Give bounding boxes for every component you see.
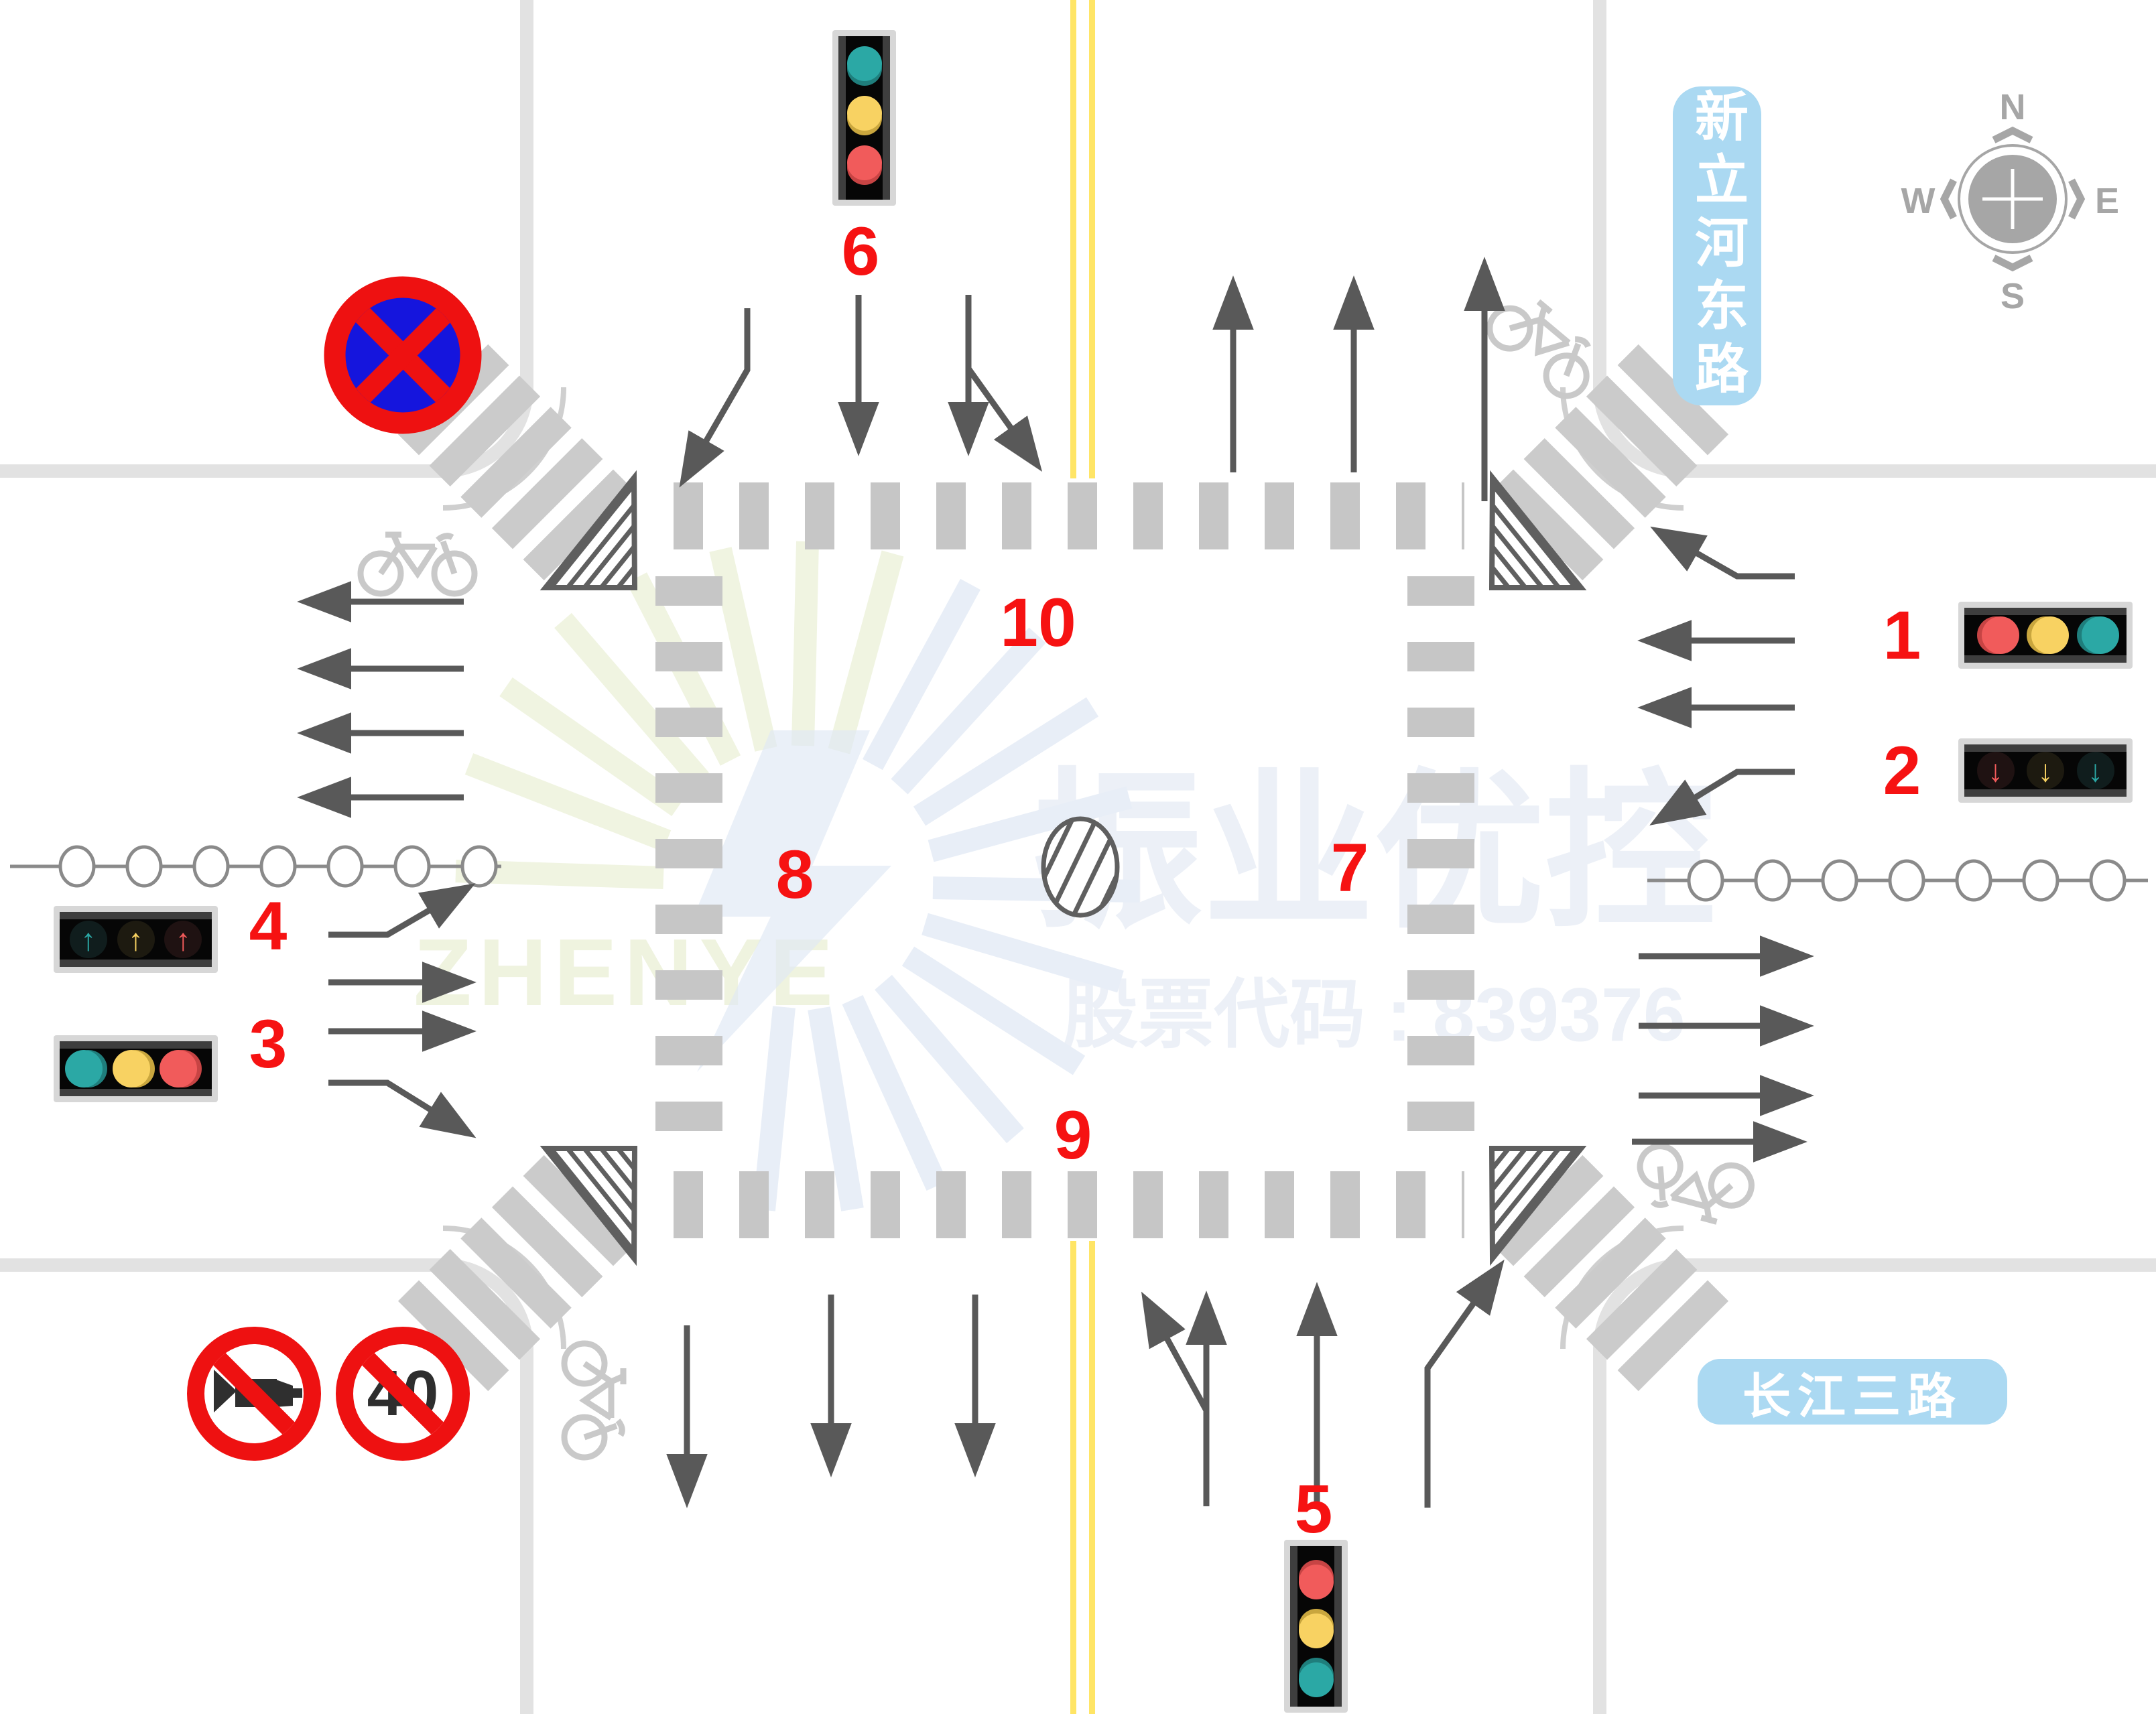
road-name-plate-north: 新立河东路 — [1673, 86, 1761, 405]
yellow-lamp — [117, 1050, 155, 1087]
bicycle-icon-se — [1631, 1142, 1756, 1228]
road-name-plate-south: 长江三路 — [1698, 1359, 2007, 1425]
compass-west-label: W — [1901, 181, 1936, 221]
teal-down-arrow-lamp: ↓ — [2077, 752, 2114, 789]
west-approach-left-turn-arrow — [328, 907, 436, 935]
traffic-light-6 — [832, 30, 896, 206]
crosswalk-east — [1407, 576, 1474, 1167]
yellow-up-arrow-lamp: ↑ — [117, 921, 155, 958]
red-lamp — [847, 150, 882, 185]
east-approach-left-turn-arrow — [1689, 772, 1795, 801]
diagram-canvas: N S W E — [0, 0, 2156, 1714]
bicycle-icon-sw — [564, 1343, 623, 1457]
marker-8: 8 — [776, 840, 814, 909]
no-horn-sign-icon — [187, 1327, 321, 1461]
separator-chain-east — [1647, 861, 2148, 900]
marker-9: 9 — [1054, 1101, 1092, 1169]
yellow-lamp — [2027, 616, 2064, 654]
double-yellow-line-north — [1070, 0, 1095, 478]
yellow-down-arrow-lamp: ↓ — [2027, 752, 2064, 789]
speed-limit-sign: 40 — [336, 1327, 470, 1461]
teal-lamp — [847, 51, 882, 86]
traffic-light-4: ↑ ↑ ↑ — [54, 906, 218, 973]
east-approach-right-turn-arrow — [1690, 549, 1795, 576]
yellow-lamp — [1299, 1609, 1334, 1644]
red-lamp — [164, 1050, 202, 1087]
traffic-light-3 — [54, 1035, 218, 1102]
compass-icon: N S W E — [1901, 87, 2120, 316]
double-yellow-line-south — [1070, 1241, 1095, 1714]
marker-1: 1 — [1883, 601, 1921, 669]
bicycle-icon-nw — [361, 535, 474, 594]
teal-lamp — [2077, 616, 2114, 654]
traffic-light-2: ↓ ↓ ↓ — [1958, 738, 2133, 803]
crosswalk-west — [655, 576, 722, 1167]
red-lamp — [1977, 616, 2015, 654]
north-approach-left-turn-arrow — [702, 308, 747, 448]
south-approach-right-turn-arrow — [1428, 1297, 1478, 1508]
marker-7: 7 — [1331, 834, 1369, 902]
no-stopping-sign-icon — [324, 277, 482, 434]
teal-lamp — [70, 1050, 107, 1087]
red-lamp — [1299, 1560, 1334, 1595]
intersection-diagram: ZHENYE 振业优控 股票代码 : 839376 — [0, 0, 2156, 1714]
teal-lamp — [1299, 1658, 1334, 1693]
bicycle-icon-ne — [1482, 285, 1607, 404]
traffic-light-1 — [1958, 602, 2133, 669]
marker-4: 4 — [249, 892, 288, 960]
yellow-lamp — [847, 101, 882, 135]
crosswalk-north — [674, 482, 1464, 549]
separator-chain-west — [10, 847, 501, 886]
west-approach-right-turn-arrow — [328, 1083, 437, 1114]
marker-2: 2 — [1883, 736, 1921, 805]
marker-10: 10 — [1000, 588, 1076, 657]
teal-up-arrow-lamp: ↑ — [70, 921, 107, 958]
marker-3: 3 — [249, 1010, 288, 1078]
marker-6: 6 — [842, 217, 880, 285]
traffic-light-5 — [1284, 1540, 1348, 1713]
red-down-arrow-lamp: ↓ — [1977, 752, 2015, 789]
red-up-arrow-lamp: ↑ — [164, 921, 202, 958]
compass-south-label: S — [2001, 276, 2025, 316]
compass-east-label: E — [2095, 181, 2119, 221]
compass-north-label: N — [2000, 87, 2026, 127]
crosswalk-south — [674, 1171, 1464, 1238]
marker-5: 5 — [1295, 1475, 1333, 1543]
